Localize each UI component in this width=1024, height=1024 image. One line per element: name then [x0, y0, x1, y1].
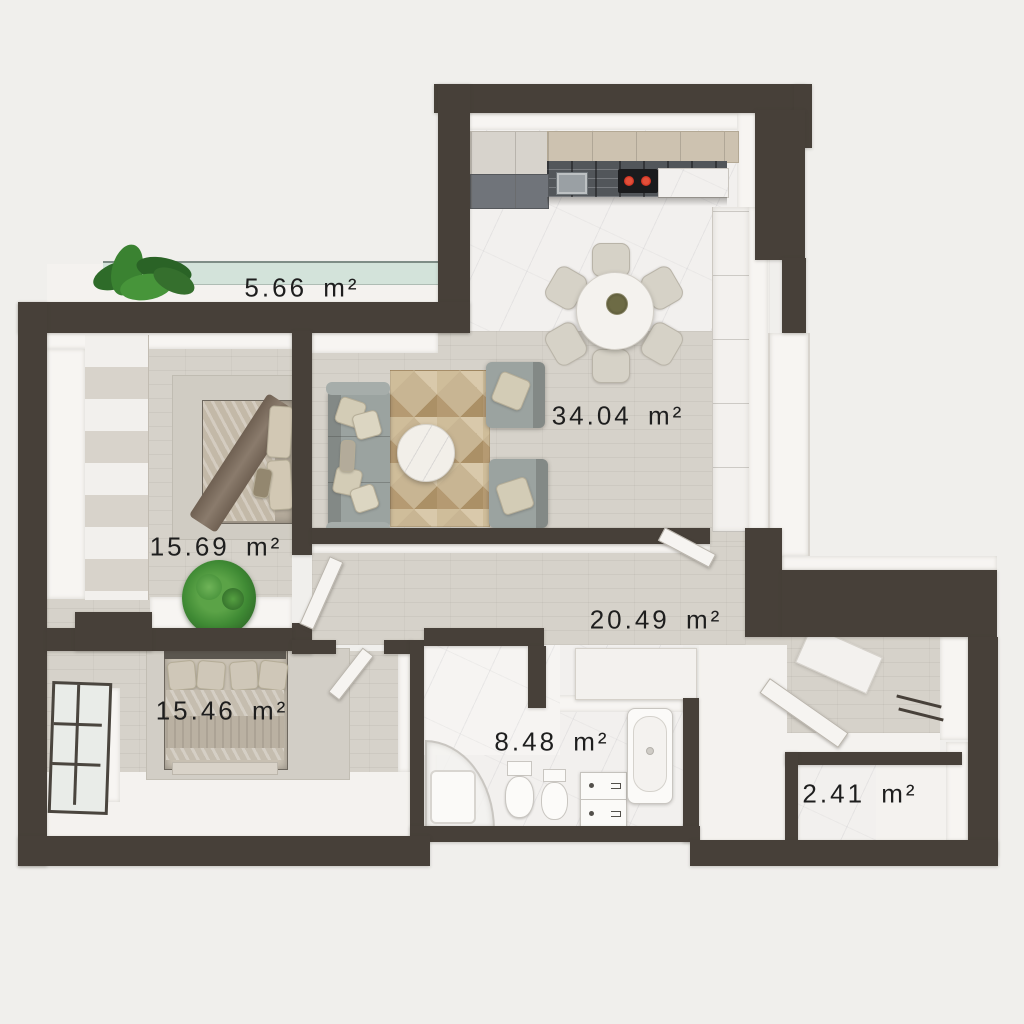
entry-right-lining	[940, 637, 970, 740]
entry-top-lining	[782, 556, 997, 570]
sofa-lumbar-pillow	[339, 440, 356, 473]
wall-kitchen-right	[755, 110, 805, 260]
bedroom-1-wardrobe	[85, 335, 149, 600]
cooktop	[618, 169, 658, 193]
bidet-tank	[543, 769, 566, 782]
bidet-bowl	[541, 782, 568, 820]
entry-floor-lower	[787, 733, 940, 752]
wall-bathroom-top	[424, 628, 544, 646]
wall-storage-top	[785, 752, 962, 765]
washer-handle	[611, 811, 621, 817]
wall-bathroom-bottom	[410, 826, 700, 842]
wall-bathroom-right	[683, 698, 699, 842]
plant-foliage	[196, 574, 222, 600]
shower-tray	[430, 770, 476, 824]
wall-hallway-bedroom2-b	[384, 640, 412, 654]
bed-pillow	[196, 660, 226, 691]
bathtub	[627, 708, 673, 804]
potted-plant	[182, 560, 256, 636]
wall-balcony-bottom	[18, 302, 470, 333]
floor-plan: 5.66 m² 34.04 m² 15.69 m² 20.49 m² 15.46…	[0, 0, 1024, 1024]
bedroom-1-left-lining	[47, 349, 85, 599]
area-label-storage: 2.41 m²	[802, 779, 917, 810]
bed-pillow	[229, 660, 259, 691]
wall-bedroom2-bathroom	[410, 640, 424, 838]
table-centerpiece	[606, 293, 628, 315]
bed-pillow	[257, 659, 288, 691]
wall-bottom-right	[690, 840, 998, 866]
dining-chair	[592, 349, 630, 383]
kitchen-upper-cabinets-left	[470, 131, 549, 176]
burner	[641, 176, 651, 186]
wall-right-upper	[782, 258, 806, 333]
wall-bedroom1-step	[75, 612, 152, 651]
living-top-lining	[312, 331, 438, 353]
toilet-tank	[507, 761, 532, 776]
wall-right-outer	[968, 637, 998, 856]
wall-hallway-bedroom2	[292, 640, 336, 654]
area-label-bedroom-1: 15.69 m²	[150, 532, 283, 563]
bedroom-2-window	[48, 681, 113, 815]
hall-closet	[575, 648, 697, 700]
corridor-floor	[699, 645, 787, 840]
area-label-balcony: 5.66 m²	[244, 273, 359, 304]
plant-foliage	[222, 588, 244, 610]
wall-bottom-left	[18, 836, 430, 866]
wall-storage-left	[785, 752, 798, 842]
counter-shadow	[547, 197, 727, 206]
window-mullion	[73, 685, 80, 805]
wall-hallway-corner	[745, 528, 782, 637]
area-label-hallway: 20.49 m²	[590, 605, 723, 636]
wall-bedroom1-living	[292, 331, 312, 555]
area-label-bathroom: 8.48 m²	[494, 727, 609, 758]
outer-right-thin-wall	[768, 333, 810, 556]
area-label-living-kitchen: 34.04 m²	[552, 401, 685, 432]
wall-entry-top	[782, 570, 997, 637]
washer-dryer-stack	[580, 772, 627, 828]
washer-handle	[611, 783, 621, 789]
living-wardrobe-column	[712, 207, 749, 532]
wall-top	[434, 84, 806, 113]
bedroom-1-top-lining	[47, 331, 292, 349]
bed-pillow	[167, 660, 198, 692]
kitchen-tall-unit	[470, 174, 549, 209]
washer-knob	[589, 811, 594, 816]
hallway-top-lining	[312, 544, 710, 553]
wall-kitchen-left	[438, 84, 470, 333]
wall-bathroom-step	[528, 646, 546, 708]
kitchen-sink	[556, 172, 588, 195]
kitchen-upper-cabinets	[547, 131, 739, 163]
washer-divider	[581, 799, 626, 800]
bedroom-2-wall-lining	[398, 654, 410, 772]
kitchen-counter-right	[658, 168, 729, 198]
wall-living-hallway	[312, 528, 710, 544]
kitchen-top-lining	[466, 113, 752, 130]
wall-left-outer	[18, 302, 47, 866]
toilet-bowl	[505, 776, 534, 818]
bathtub-drain	[646, 747, 654, 755]
burner	[624, 176, 634, 186]
washer-knob	[589, 783, 594, 788]
bedroom-2-bench	[172, 762, 278, 775]
area-label-bedroom-2: 15.46 m²	[156, 696, 289, 727]
bed-pillow	[266, 405, 294, 459]
coffee-table	[397, 424, 455, 482]
sofa-armrest	[326, 382, 390, 395]
